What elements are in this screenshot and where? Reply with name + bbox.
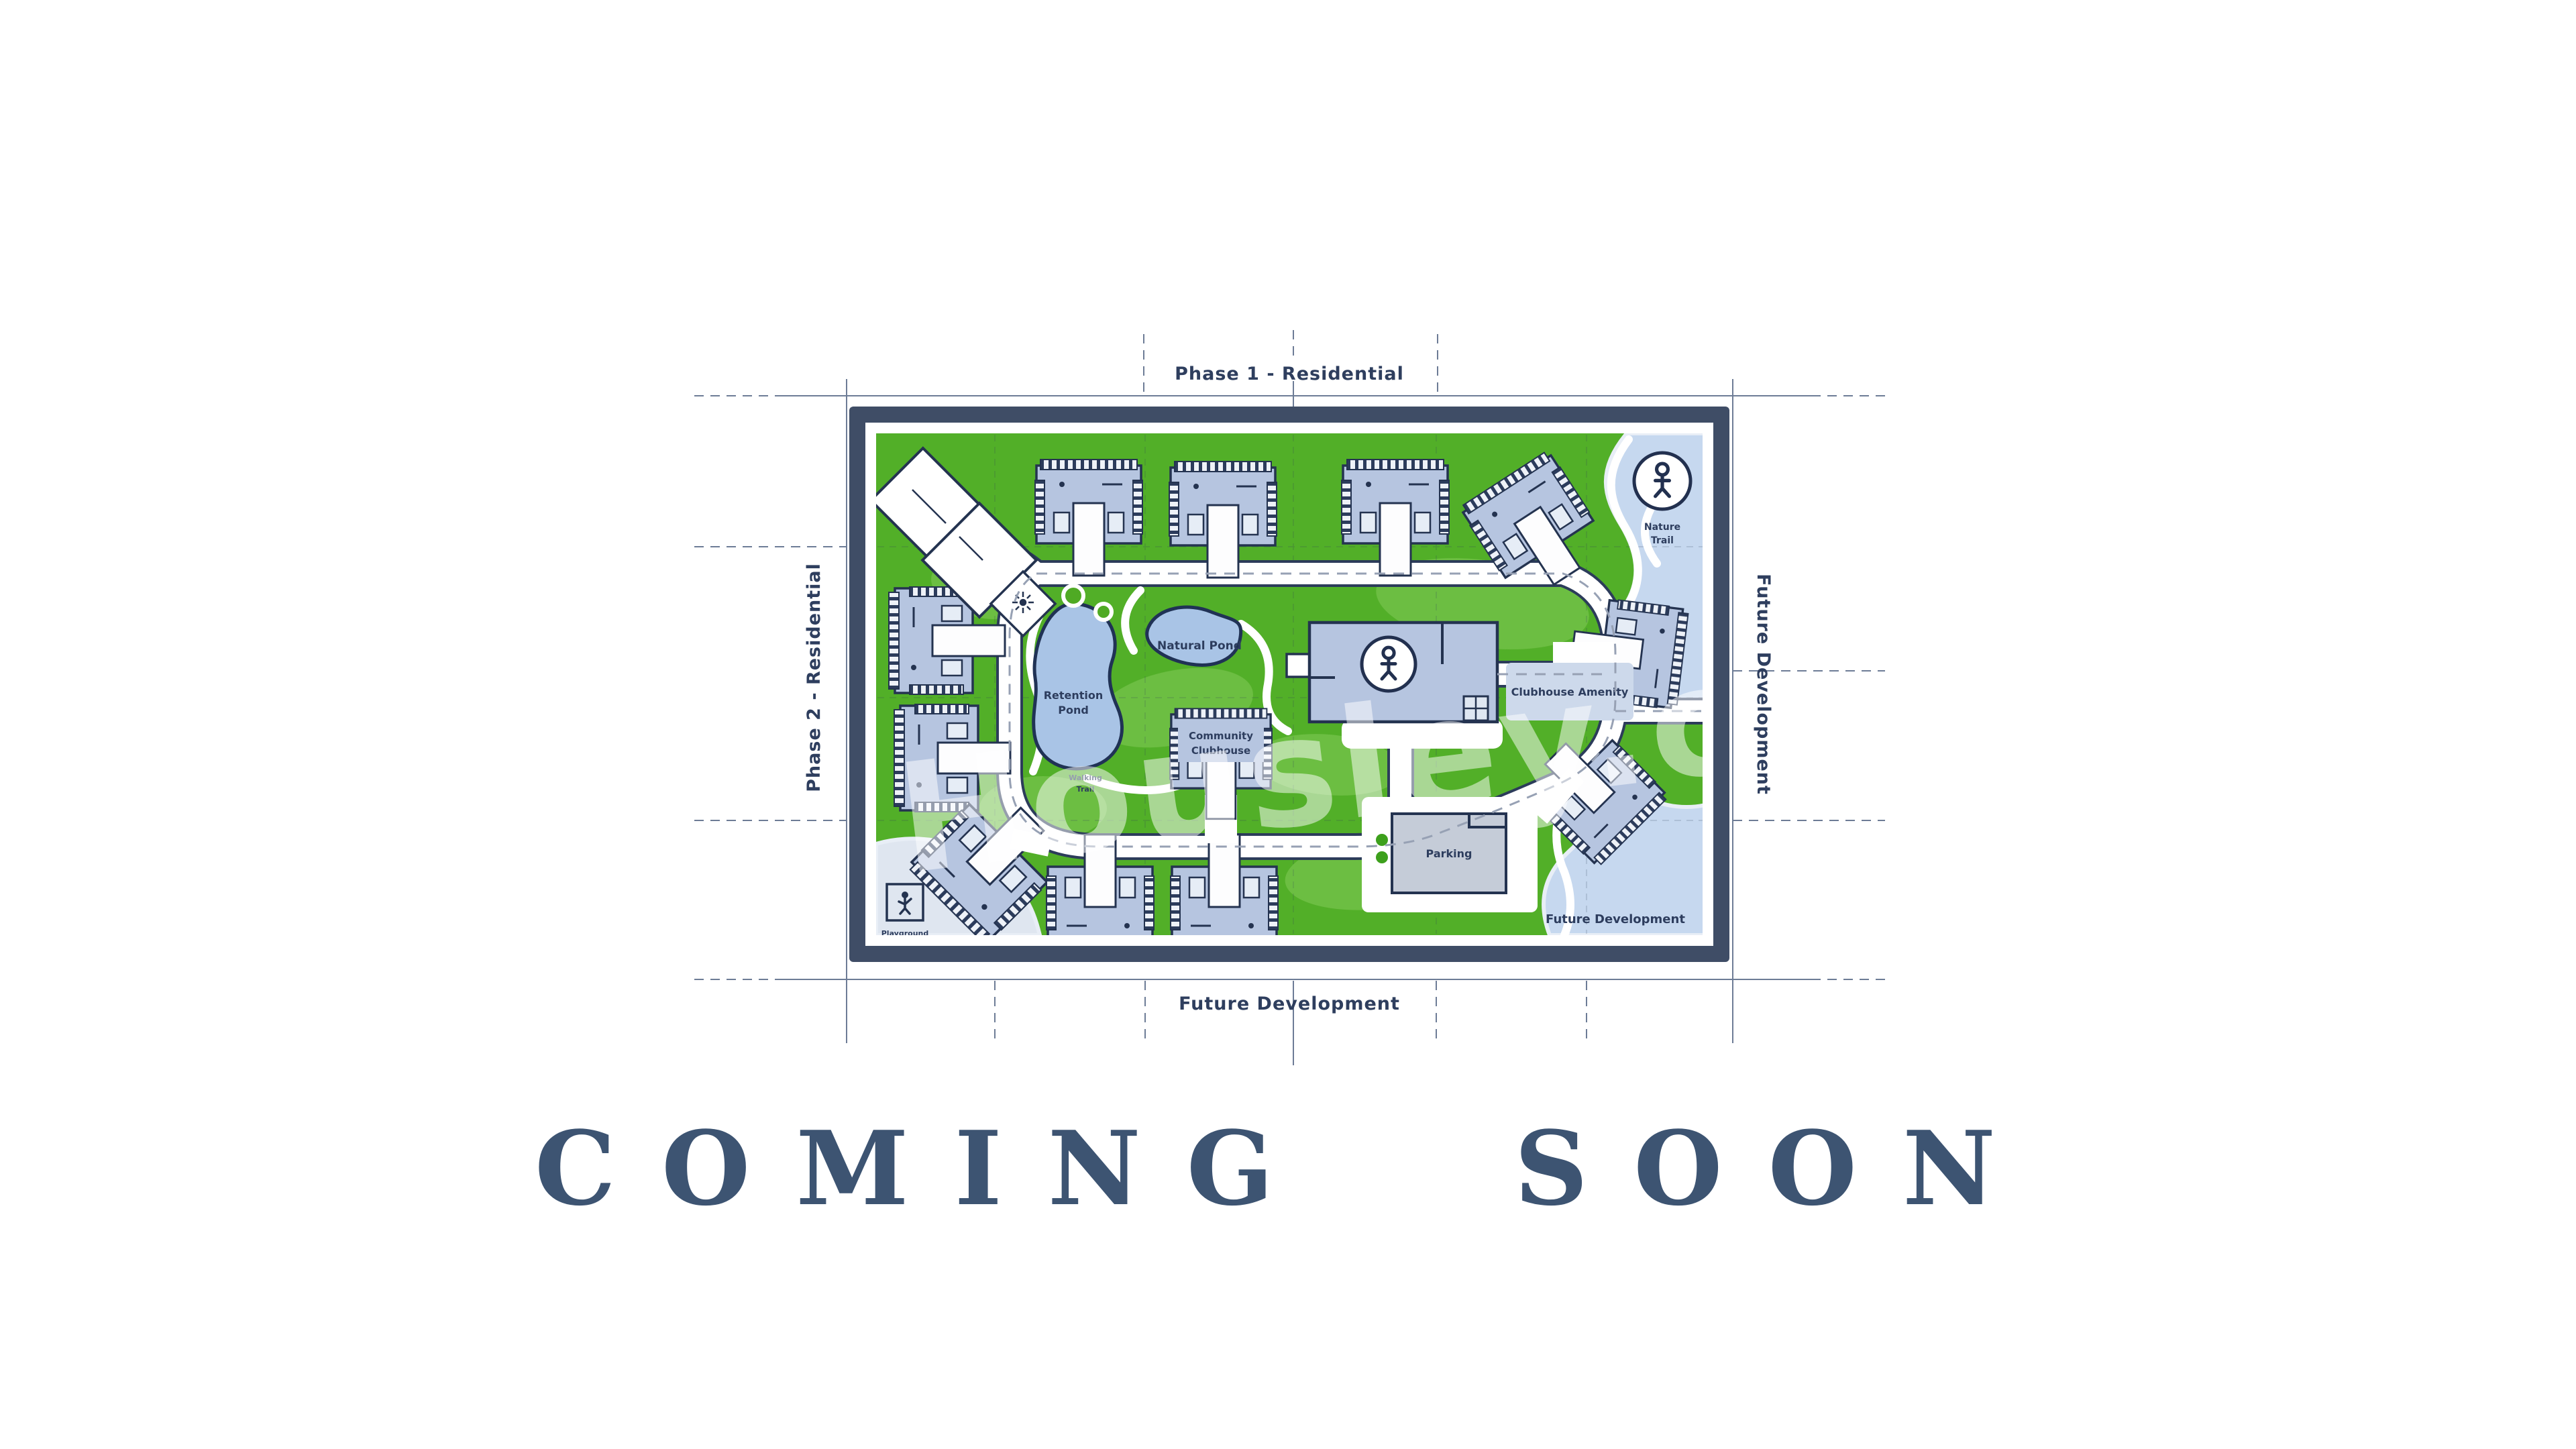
- label-future-development-right: Future Development: [1753, 574, 1774, 795]
- coming-soon-text: COMING SOON: [0, 1095, 2576, 1242]
- label-phase2-left: Phase 2 - Residential: [804, 563, 824, 792]
- label-nature-1: Nature: [1644, 522, 1680, 533]
- label-retention-1: Retention: [1044, 689, 1104, 702]
- label-natural-pond: Natural Pond: [1157, 639, 1242, 653]
- label-parking: Parking: [1426, 847, 1472, 860]
- label-future-development-bottom: Future Development: [1179, 994, 1400, 1014]
- label-future-dev-area: Future Development: [1546, 912, 1685, 926]
- label-nature-2: Trail: [1651, 535, 1674, 546]
- label-phase1: Phase 1 - Residential: [1175, 364, 1404, 384]
